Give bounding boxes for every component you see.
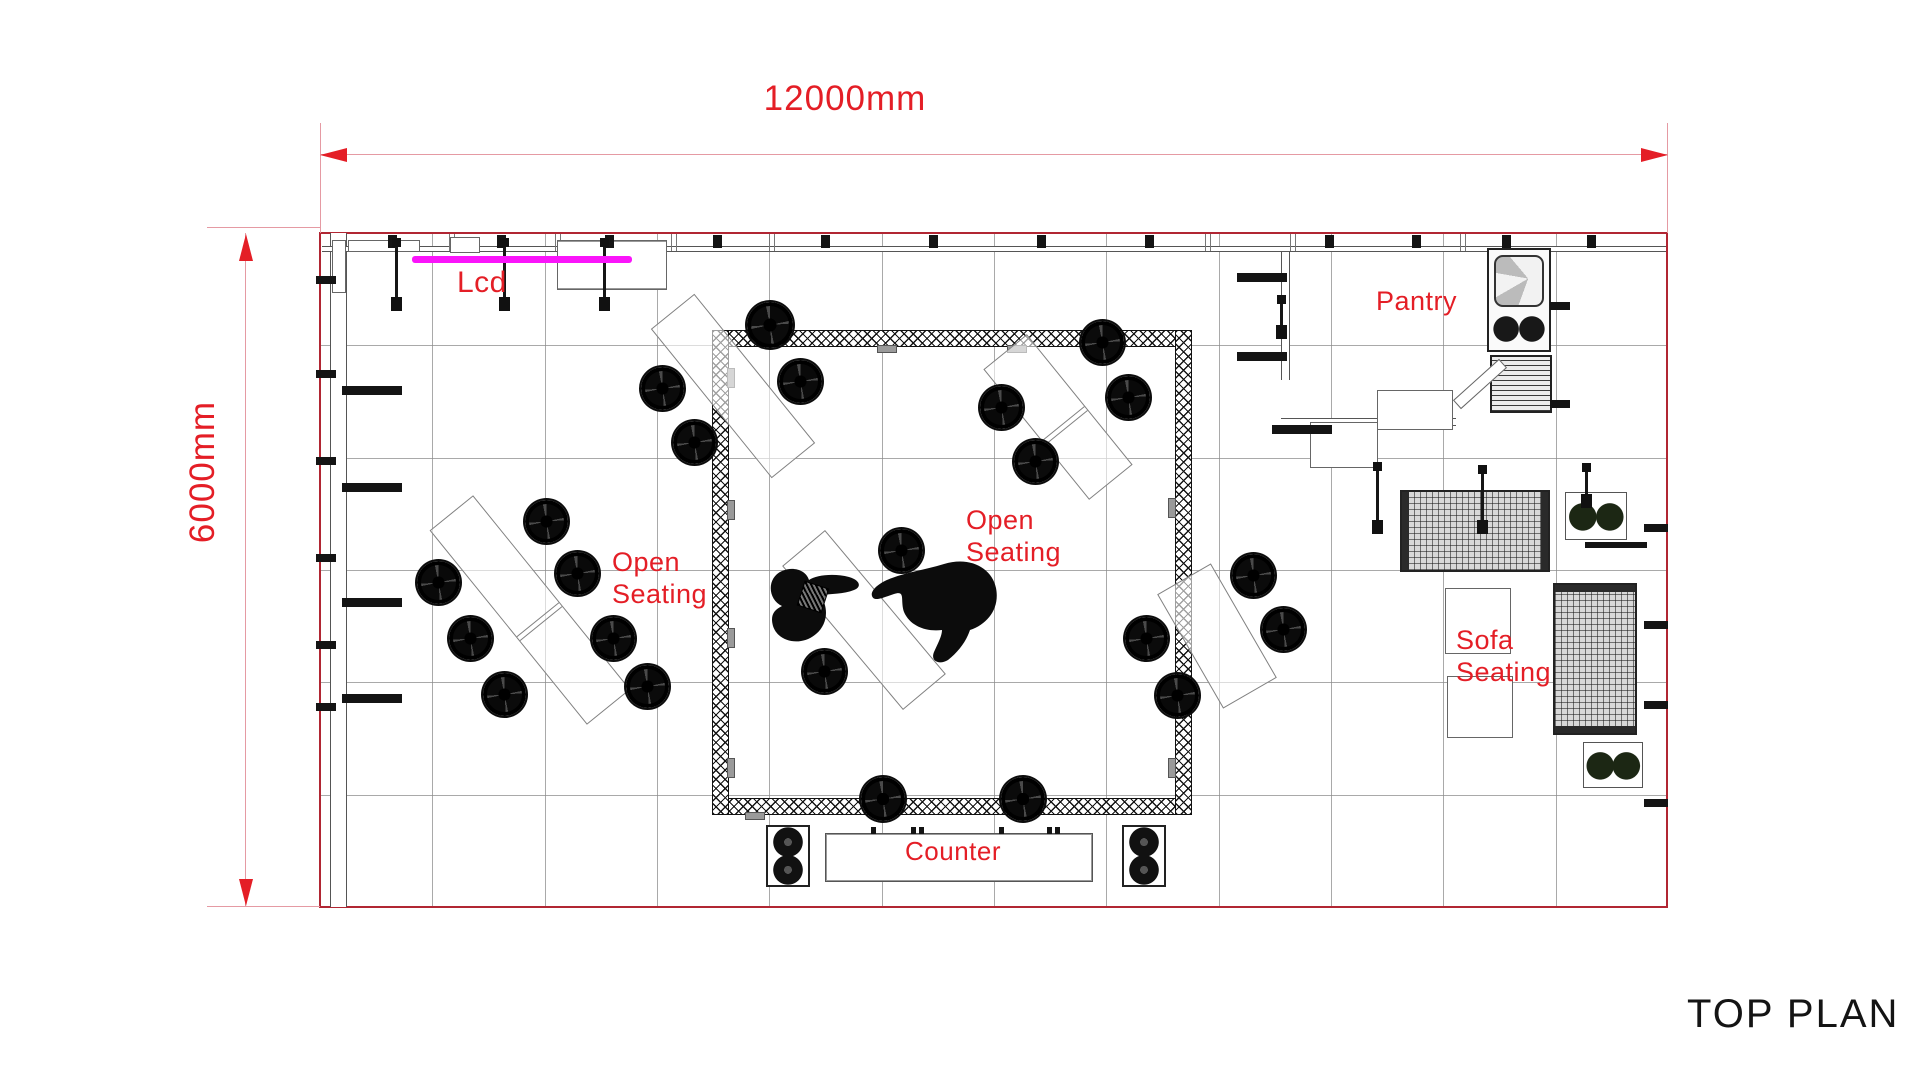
plant-table xyxy=(1565,492,1627,540)
area-label-sofa-seating: Sofa Seating xyxy=(1456,624,1756,704)
speaker-cabinet xyxy=(766,825,810,887)
wall-shelf xyxy=(450,237,480,253)
wall-joint xyxy=(1290,234,1296,251)
plant-table xyxy=(1583,742,1643,788)
wall-tick xyxy=(1550,400,1570,408)
stool-chair xyxy=(1125,617,1168,660)
stool-chair xyxy=(417,561,460,604)
wall-tick xyxy=(1145,235,1154,248)
drawing-title: TOP PLAN xyxy=(1687,992,1899,1037)
light-rod xyxy=(1376,465,1379,530)
wall-tick xyxy=(1502,235,1511,248)
truss-connector xyxy=(745,812,765,820)
stool-chair xyxy=(1156,674,1199,717)
wall-tick xyxy=(316,457,336,465)
extension-line-top-right xyxy=(1667,123,1668,233)
arrow-up-icon xyxy=(239,234,253,261)
wall-tick xyxy=(911,827,916,834)
wall-tick xyxy=(1644,524,1668,532)
dimension-line-left xyxy=(245,233,246,907)
stool-chair xyxy=(626,665,669,708)
wall-tick xyxy=(1272,425,1332,434)
light-rod xyxy=(1481,468,1484,530)
wall-tick xyxy=(1237,352,1287,361)
stool-chair xyxy=(779,360,822,403)
stool-chair xyxy=(1001,777,1045,821)
wall-tick xyxy=(871,827,876,834)
wall-tick xyxy=(1587,235,1596,248)
area-label-pantry: Pantry xyxy=(1376,286,1676,366)
wall-tick xyxy=(342,694,402,703)
stool-chair xyxy=(525,500,568,543)
truss-connector xyxy=(877,345,897,353)
wall-tick xyxy=(1055,827,1060,834)
table-divider xyxy=(517,603,563,642)
area-label-open-seating-right: Open Seating xyxy=(966,504,1266,584)
wall-tick xyxy=(342,386,402,395)
wall-tick xyxy=(316,703,336,711)
wall-joint xyxy=(1460,234,1466,251)
wall-tick xyxy=(929,235,938,248)
stool-chair xyxy=(1081,321,1124,364)
stool-chair xyxy=(861,777,905,821)
wall-tick xyxy=(919,827,924,834)
arrow-right-icon xyxy=(1641,148,1668,162)
wall-joint xyxy=(769,234,775,251)
wall-tick xyxy=(1585,542,1647,548)
area-label-open-seating-left: Open Seating xyxy=(612,546,912,626)
wall-shelf xyxy=(332,240,346,293)
truss-connector xyxy=(727,628,735,648)
dimension-line-top xyxy=(320,154,1668,155)
wall-tick xyxy=(342,598,402,607)
stool-chair xyxy=(556,552,599,595)
stool-chair xyxy=(673,421,716,464)
wall-tick xyxy=(1237,273,1287,282)
stool-chair xyxy=(1014,440,1057,483)
wall-tick xyxy=(316,370,336,378)
stool-chair xyxy=(641,367,684,410)
stool-chair xyxy=(483,673,526,716)
light-rod xyxy=(395,241,398,307)
left-wall xyxy=(330,233,347,907)
stool-chair xyxy=(449,617,492,660)
area-label-counter: Counter xyxy=(905,836,1205,916)
extension-line-top-left xyxy=(320,123,321,233)
wall-tick xyxy=(316,276,336,284)
extension-line-left-top xyxy=(207,227,320,228)
stool-chair xyxy=(1262,608,1305,651)
light-rod xyxy=(1280,298,1283,335)
wall-tick xyxy=(999,827,1004,834)
dimension-height-label: 6000mm xyxy=(183,401,223,543)
wall-tick xyxy=(713,235,722,248)
wall-tick xyxy=(1325,235,1334,248)
arrow-down-icon xyxy=(239,879,253,906)
wall-tick xyxy=(342,483,402,492)
area-label-lcd: Lcd xyxy=(457,266,757,346)
wall-tick xyxy=(1037,235,1046,248)
wall-tick xyxy=(316,554,336,562)
dimension-width-label: 12000mm xyxy=(764,79,927,119)
wall-tick xyxy=(821,235,830,248)
truss-connector xyxy=(1168,758,1176,778)
truss-connector xyxy=(727,500,735,520)
arrow-left-icon xyxy=(320,148,347,162)
stool-chair xyxy=(980,386,1023,429)
table-divider xyxy=(1042,406,1088,445)
pantry-table xyxy=(1377,390,1453,430)
wall-shelf xyxy=(348,240,420,252)
wall-tick xyxy=(1412,235,1421,248)
stool-chair xyxy=(1107,376,1150,419)
truss-connector xyxy=(727,758,735,778)
sofa-horizontal xyxy=(1400,490,1550,572)
wall-joint xyxy=(1205,234,1211,251)
wall-tick xyxy=(316,641,336,649)
light-rod xyxy=(1585,466,1588,504)
floor-plan-canvas: 12000mm 6000mm TOP PLAN LcdOpen SeatingO… xyxy=(0,0,1920,1080)
extension-line-left-bottom xyxy=(207,906,320,907)
wall-tick xyxy=(1644,799,1668,807)
truss-bar-bottom xyxy=(712,798,1192,815)
wall-joint xyxy=(671,234,677,251)
wall-tick xyxy=(1047,827,1052,834)
lcd-screen-line xyxy=(412,256,632,263)
